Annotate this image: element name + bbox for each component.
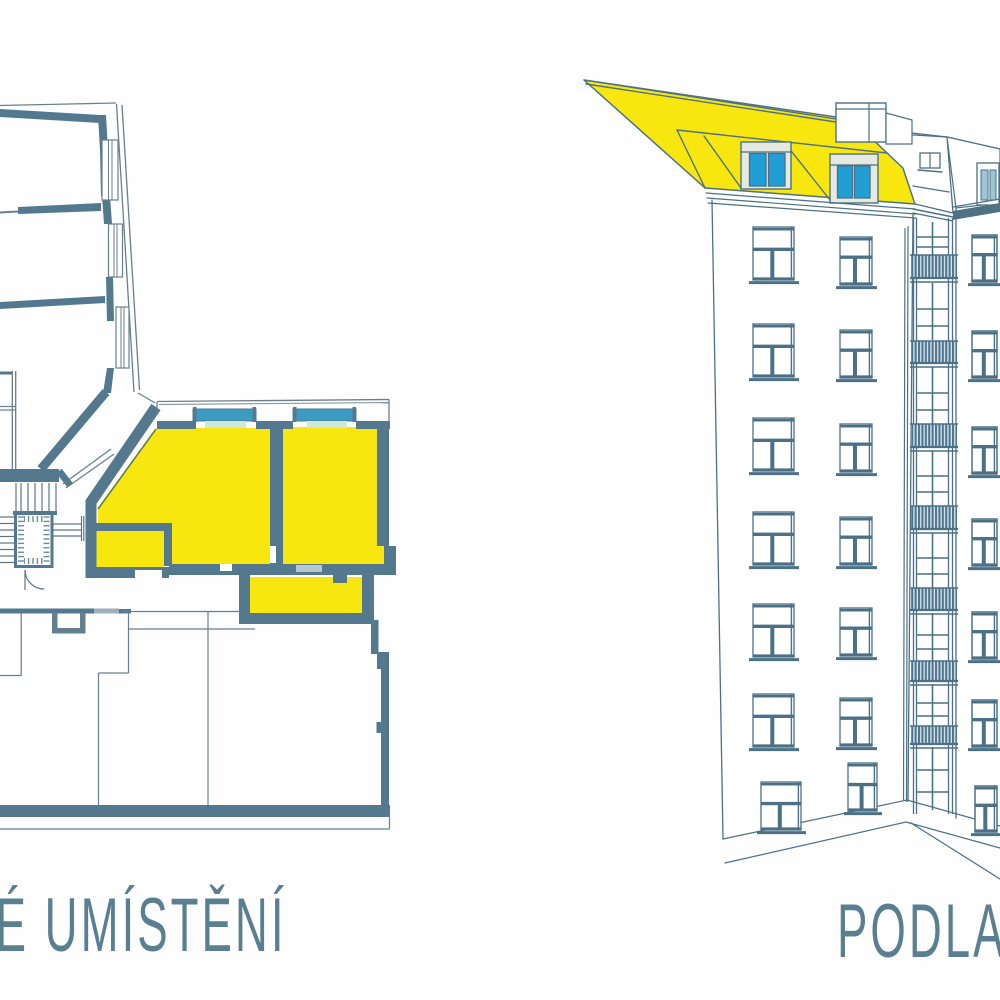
- svg-text:PODLAŽÍ: PODLAŽÍ: [837, 889, 1000, 974]
- svg-text:É UMÍSTĚNÍ: É UMÍSTĚNÍ: [0, 883, 286, 968]
